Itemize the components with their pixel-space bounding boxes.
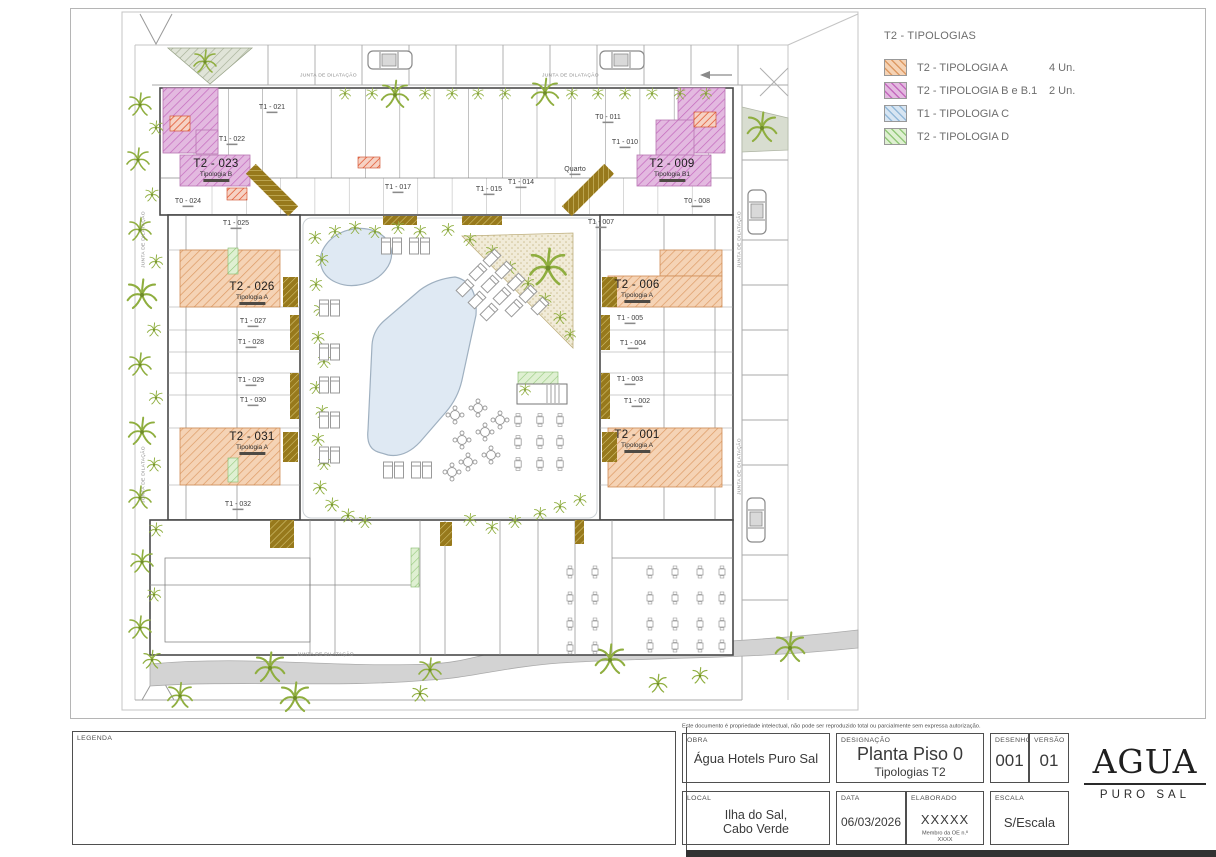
designacao-label: DESIGNAÇÃO	[841, 737, 890, 744]
legenda-label: LEGENDA	[77, 735, 112, 742]
parking-top	[152, 45, 788, 85]
sheet-bottom-bar	[686, 850, 1216, 857]
elaborado-value: XXXXX	[907, 812, 983, 827]
versao-label: VERSÃO	[1034, 737, 1065, 744]
elaborado-box: ELABORADO XXXXX Membro da OE n.º XXXX	[906, 791, 984, 845]
desenho-label: DESENHO	[995, 737, 1031, 744]
legend-swatch	[884, 59, 907, 76]
local-box: LOCAL Ilha do Sal, Cabo Verde	[682, 791, 830, 845]
local-value2: Cabo Verde	[683, 822, 829, 836]
obra-box: OBRA Água Hotels Puro Sal	[682, 733, 830, 783]
versao-value: 01	[1030, 751, 1068, 771]
sand-deck	[462, 233, 573, 348]
legend-swatch	[884, 128, 907, 145]
typology-legend: T2 - TIPOLOGIAS T2 - TIPOLOGIA A4 Un.T2 …	[884, 30, 1184, 148]
legend-item-count: 2 Un.	[1049, 85, 1075, 97]
obra-label: OBRA	[687, 737, 708, 744]
logo-rule	[1084, 783, 1206, 785]
escala-label: ESCALA	[995, 795, 1024, 802]
legend-item: T2 - TIPOLOGIA A4 Un.	[884, 56, 1184, 79]
elaborado-note: Membro da OE n.º XXXX	[921, 830, 968, 842]
drawing-sheet: T2 - 023Tipologia BT2 - 009Tipologia B1T…	[0, 0, 1216, 857]
escala-value: S/Escala	[991, 815, 1068, 830]
local-value: Ilha do Sal,	[683, 808, 829, 822]
legend-item-label: T2 - TIPOLOGIA A	[917, 62, 1049, 74]
data-label: DATA	[841, 795, 860, 802]
brand-logo: AGUA PURO SAL	[1082, 742, 1208, 801]
logo-sub: PURO SAL	[1082, 789, 1208, 801]
legend-item-count: 4 Un.	[1049, 62, 1075, 74]
legend-item-label: T2 - TIPOLOGIA D	[917, 131, 1049, 143]
legend-item-label: T1 - TIPOLOGIA C	[917, 108, 1049, 120]
legend-title: T2 - TIPOLOGIAS	[884, 30, 1184, 42]
legend-swatch	[884, 105, 907, 122]
versao-box: VERSÃO 01	[1029, 733, 1069, 783]
legend-swatch	[884, 82, 907, 99]
direction-arrow-icon	[700, 71, 732, 79]
legend-item-label: T2 - TIPOLOGIA B e B.1	[917, 85, 1049, 97]
legenda-box: LEGENDA	[72, 731, 676, 845]
obra-value: Água Hotels Puro Sal	[683, 751, 829, 766]
designacao-subvalue: Tipologias T2	[837, 765, 983, 779]
data-box: DATA 06/03/2026	[836, 791, 906, 845]
designacao-box: DESIGNAÇÃO Planta Piso 0 Tipologias T2	[836, 733, 984, 783]
local-label: LOCAL	[687, 795, 711, 802]
copyright-note: Este documento é propriedade intelectual…	[682, 723, 981, 729]
desenho-box: DESENHO 001	[990, 733, 1029, 783]
titleblock-separator	[686, 727, 687, 850]
escala-box: ESCALA S/Escala	[990, 791, 1069, 845]
legend-item: T1 - TIPOLOGIA C	[884, 102, 1184, 125]
legend-item: T2 - TIPOLOGIA D	[884, 125, 1184, 148]
elaborado-label: ELABORADO	[911, 795, 957, 802]
designacao-value: Planta Piso 0	[837, 744, 983, 765]
logo-name: AGUA	[1082, 742, 1208, 781]
legend-item: T2 - TIPOLOGIA B e B.12 Un.	[884, 79, 1184, 102]
pool-bar	[517, 384, 567, 404]
desenho-value: 001	[991, 751, 1028, 771]
data-value: 06/03/2026	[837, 815, 905, 829]
